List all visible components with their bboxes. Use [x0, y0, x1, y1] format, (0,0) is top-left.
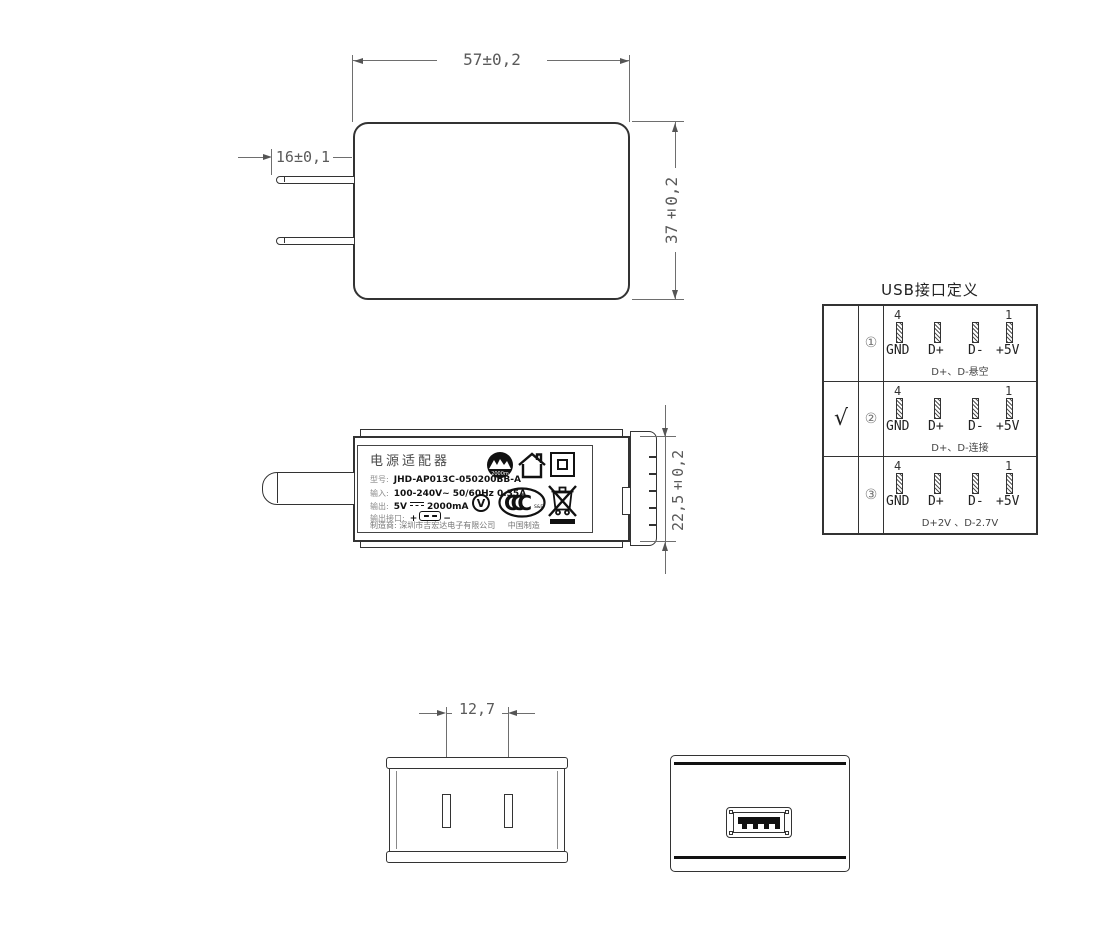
pin-dplus	[934, 473, 941, 494]
manufacturer-label: 制造商:	[370, 521, 397, 530]
dim-arrow-up	[672, 123, 678, 132]
pinout-note: D+2V 、D-2.7V	[884, 514, 1036, 529]
rating-label: 电源适配器 型号: JHD-AP013C-050200BB-A 输入: 100-…	[357, 445, 593, 533]
dim-prong-spacing: 12,7	[452, 701, 502, 718]
adapter-body-top-view	[353, 122, 630, 300]
pinout-cell: 4 1 GND D+ D- +5V D+2V 、D-2.7V	[884, 457, 1036, 533]
pin-5v	[1006, 398, 1013, 419]
ext-line	[271, 149, 272, 175]
pin-dplus	[934, 398, 941, 419]
ccc-mark-icon: CCC S&E	[498, 487, 546, 522]
technical-drawing-sheet: 57±0,2 16±0,1 37±0,2	[0, 0, 1100, 925]
class-ii-icon	[550, 452, 575, 477]
pinout-cell: 4 1 GND D+ D- +5V D+、D-连接	[884, 382, 1036, 458]
plug-prong-side	[262, 472, 355, 505]
cap-dash	[649, 524, 656, 526]
prong-tip-line	[284, 177, 285, 182]
dim-prong-length: 16±0,1	[273, 149, 333, 166]
cap-dash	[649, 490, 656, 492]
usb-contact-pin	[775, 824, 780, 829]
ext-line	[352, 55, 353, 122]
dim-arrow-left	[508, 710, 517, 716]
body-edge-line	[396, 771, 397, 849]
ext-line	[629, 55, 630, 122]
indoor-use-house-icon	[517, 451, 547, 483]
front-body	[389, 768, 565, 852]
pin-gnd	[896, 322, 903, 343]
weee-bin-icon	[547, 484, 578, 522]
dim-arrow-right	[620, 58, 629, 64]
usb-pin-table: ① 4 1 GND D+ D- +5V D+、D-悬空 √ ② 4 1	[822, 304, 1038, 535]
made-in: 中国制造	[508, 521, 540, 530]
pinout-note: D+、D-悬空	[884, 363, 1036, 378]
ext-line	[640, 541, 676, 542]
usb-port-profile	[622, 487, 631, 515]
ext-line	[632, 299, 684, 300]
plug-prong-lower	[276, 237, 355, 245]
dim-tail	[419, 713, 437, 714]
cap-dash	[649, 456, 656, 458]
dim-side-height: 22,5±0,2	[670, 447, 694, 533]
usb-tongue	[738, 817, 780, 824]
pin-dminus	[972, 398, 979, 419]
dim-line	[333, 157, 352, 158]
rear-top-seam	[674, 762, 846, 765]
option-check-cell	[824, 457, 859, 533]
usb-connector-icon	[419, 511, 441, 521]
option-number-cell: ②	[859, 382, 884, 458]
prong-cap-line	[277, 473, 278, 503]
pin-5v	[1006, 473, 1013, 494]
option-number-cell: ③	[859, 457, 884, 533]
dim-arrow-up	[662, 542, 668, 551]
cap-dash	[649, 473, 656, 475]
pinout-cell: 4 1 GND D+ D- +5V D+、D-悬空	[884, 306, 1036, 382]
dim-arrow-left	[354, 58, 363, 64]
dim-arrow-right	[437, 710, 446, 716]
option-number-cell: ①	[859, 306, 884, 382]
ext-line	[632, 121, 684, 122]
body-edge-line	[557, 771, 558, 849]
cap-dash	[649, 507, 656, 509]
dim-arrow-down	[672, 290, 678, 299]
pin-gnd	[896, 473, 903, 494]
dim-body-width: 57±0,2	[437, 51, 547, 69]
dim-tail	[517, 713, 535, 714]
black-bar-mark	[550, 519, 575, 524]
svg-text:2000m: 2000m	[491, 471, 509, 477]
option-check-cell: √	[824, 382, 859, 458]
port-corner-tab	[785, 831, 789, 835]
usb-contact-pin	[764, 824, 769, 829]
usb-end-cap	[630, 431, 657, 546]
svg-text:S&E: S&E	[534, 504, 543, 510]
dim-arrow-down	[662, 428, 668, 437]
manufacturer-value: 深圳市吉宏达电子有限公司	[399, 521, 495, 530]
prong-tip-line	[284, 238, 285, 243]
svg-text:CCC: CCC	[504, 491, 531, 515]
front-bottom-cap	[386, 851, 568, 863]
pin-dplus	[934, 322, 941, 343]
pinout-note: D+、D-连接	[884, 439, 1036, 454]
plug-prong-upper	[276, 176, 355, 184]
prong-slot-left	[442, 794, 451, 828]
efficiency-level-icon: V	[472, 494, 490, 512]
rear-bottom-seam	[674, 856, 846, 859]
altitude-2000m-icon: 2000m	[486, 451, 514, 483]
pin-dminus	[972, 322, 979, 343]
ext-line	[640, 436, 676, 437]
usb-contact-pin	[753, 824, 758, 829]
prong-slot-right	[504, 794, 513, 828]
pin-5v	[1006, 322, 1013, 343]
pin-dminus	[972, 473, 979, 494]
port-corner-tab	[785, 810, 789, 814]
pin-gnd	[896, 398, 903, 419]
dim-tail	[238, 157, 266, 158]
option-check-cell	[824, 306, 859, 382]
usb-table-title: USB接口定义	[822, 279, 1038, 300]
dim-body-height: 37±0,2	[663, 168, 689, 252]
usb-contact-pin	[742, 824, 747, 829]
